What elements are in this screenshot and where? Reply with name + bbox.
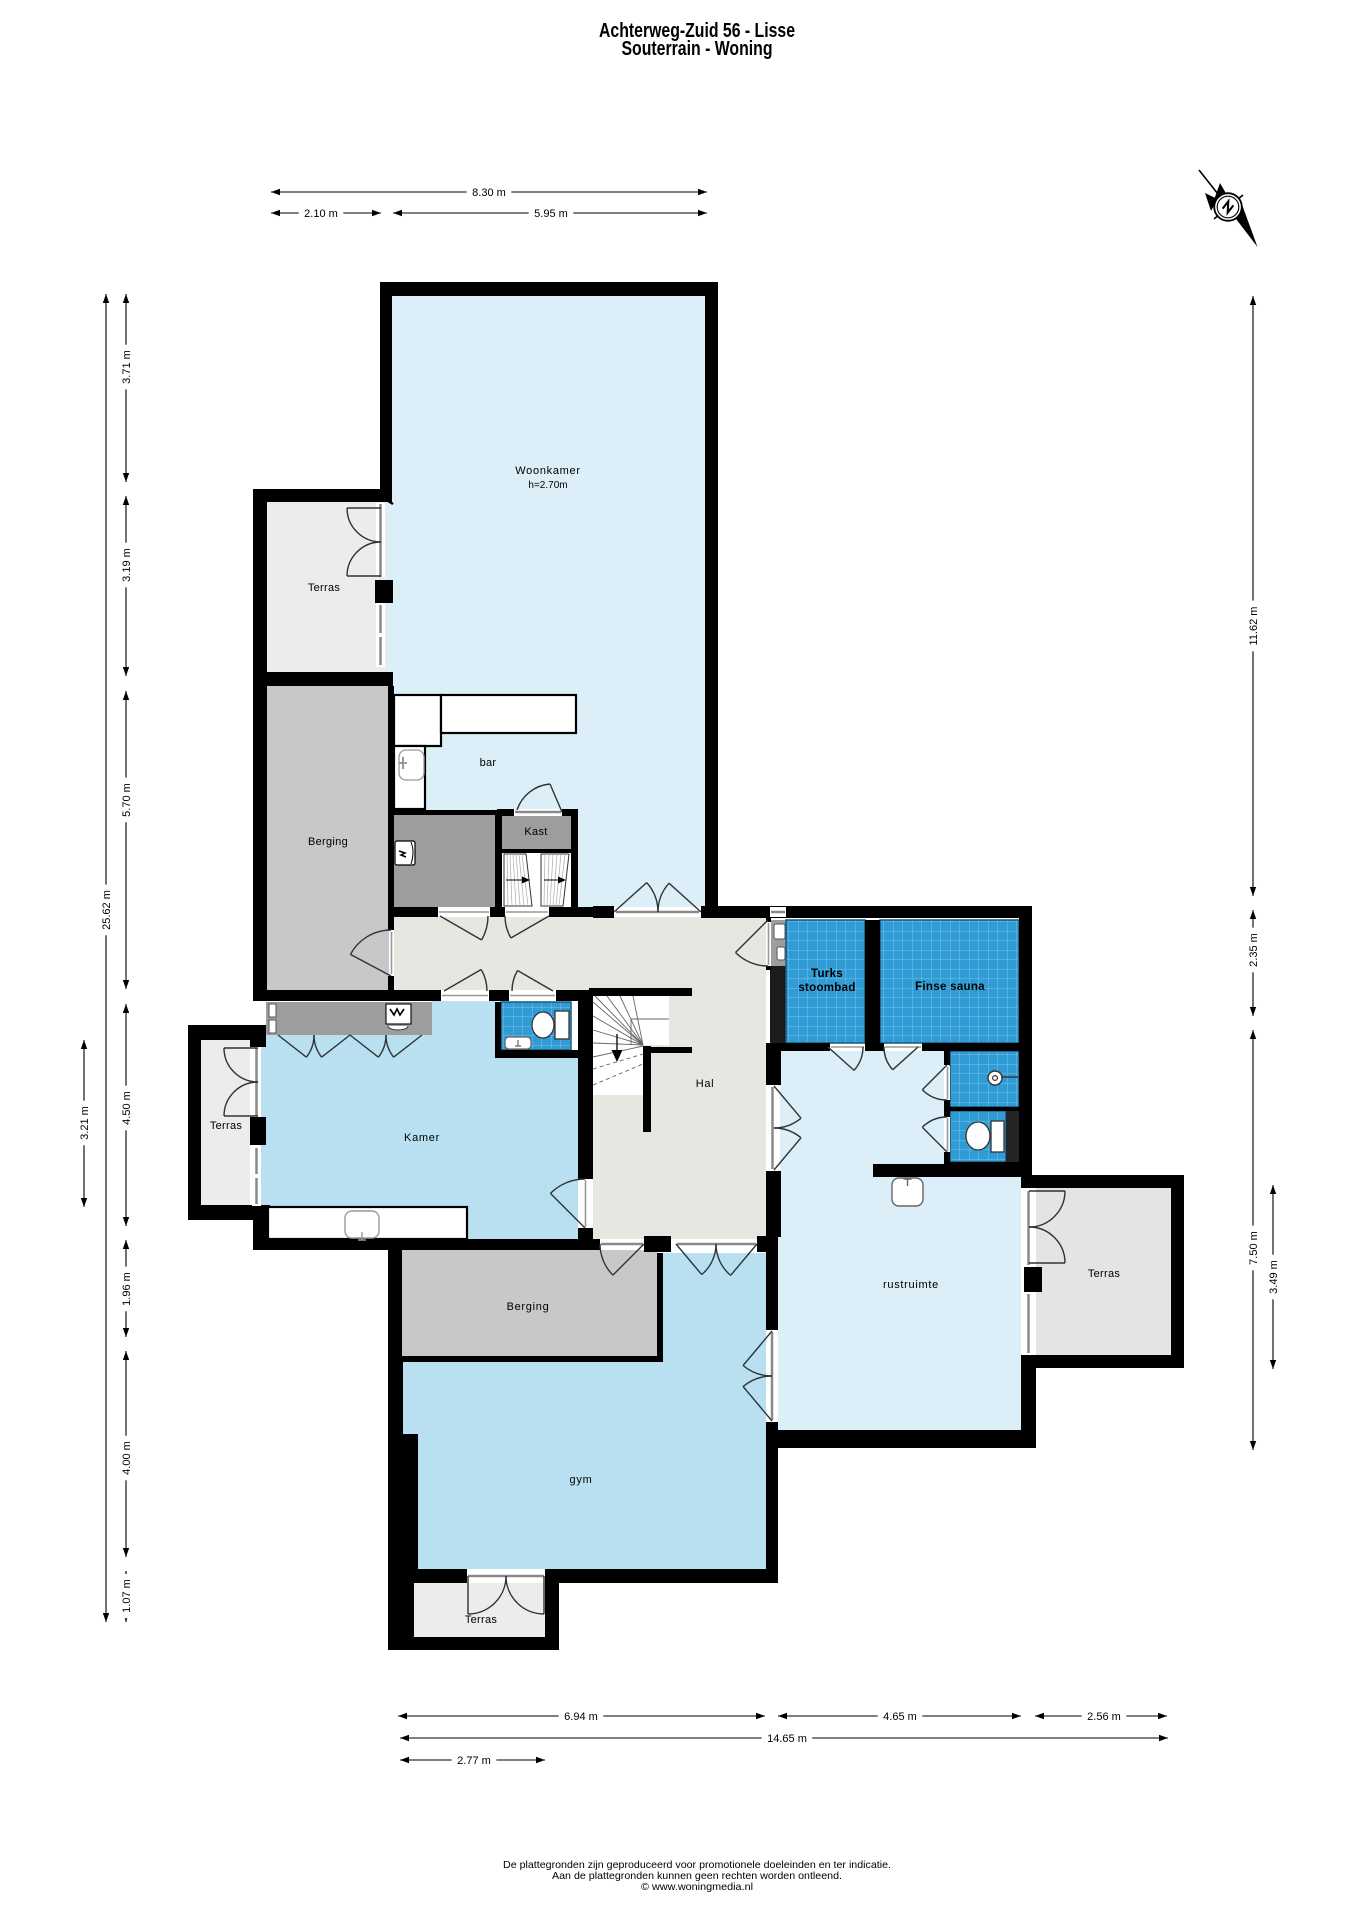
- svg-text:5.70 m: 5.70 m: [121, 783, 133, 817]
- svg-text:4.00 m: 4.00 m: [121, 1441, 133, 1475]
- svg-text:Terras: Terras: [210, 1120, 243, 1132]
- svg-text:Berging: Berging: [507, 1301, 550, 1313]
- svg-text:8.30 m: 8.30 m: [472, 187, 506, 199]
- svg-text:Turks: Turks: [811, 968, 843, 980]
- svg-text:Souterrain - Woning: Souterrain - Woning: [622, 38, 773, 60]
- svg-text:Kast: Kast: [524, 826, 547, 838]
- svg-text:14.65 m: 14.65 m: [767, 1733, 807, 1745]
- svg-text:7.50 m: 7.50 m: [1248, 1231, 1260, 1265]
- svg-text:gym: gym: [570, 1474, 593, 1486]
- svg-text:1.07 m: 1.07 m: [121, 1579, 133, 1613]
- svg-text:3.19 m: 3.19 m: [121, 548, 133, 582]
- svg-text:3.21 m: 3.21 m: [79, 1106, 91, 1140]
- svg-text:4.50 m: 4.50 m: [121, 1091, 133, 1125]
- svg-text:rustruimte: rustruimte: [883, 1279, 939, 1291]
- svg-text:11.62 m: 11.62 m: [1248, 607, 1260, 646]
- svg-text:Hal: Hal: [696, 1078, 715, 1090]
- svg-text:Terras: Terras: [308, 582, 341, 594]
- svg-text:h=2.70m: h=2.70m: [528, 480, 567, 491]
- svg-text:Terras: Terras: [465, 1614, 498, 1626]
- svg-text:1.96 m: 1.96 m: [121, 1272, 133, 1306]
- svg-text:Finse sauna: Finse sauna: [915, 981, 985, 993]
- svg-text:2.10 m: 2.10 m: [304, 208, 338, 220]
- svg-text:bar: bar: [480, 757, 497, 769]
- svg-text:2.35 m: 2.35 m: [1248, 933, 1260, 967]
- svg-text:2.56 m: 2.56 m: [1087, 1711, 1121, 1723]
- svg-text:Berging: Berging: [308, 836, 348, 848]
- svg-text:3.49 m: 3.49 m: [1268, 1260, 1280, 1294]
- svg-text:25.62 m: 25.62 m: [101, 890, 113, 930]
- svg-text:stoombad: stoombad: [798, 982, 855, 994]
- svg-text:3.71 m: 3.71 m: [121, 350, 133, 384]
- svg-text:5.95 m: 5.95 m: [534, 208, 568, 220]
- svg-text:Kamer: Kamer: [404, 1132, 440, 1144]
- svg-text:6.94 m: 6.94 m: [564, 1711, 598, 1723]
- svg-text:2.77 m: 2.77 m: [457, 1755, 491, 1767]
- svg-text:4.65 m: 4.65 m: [883, 1711, 917, 1723]
- svg-text:Terras: Terras: [1088, 1268, 1121, 1280]
- svg-text:Woonkamer: Woonkamer: [515, 465, 580, 477]
- svg-text:© www.woningmedia.nl: © www.woningmedia.nl: [641, 1881, 753, 1893]
